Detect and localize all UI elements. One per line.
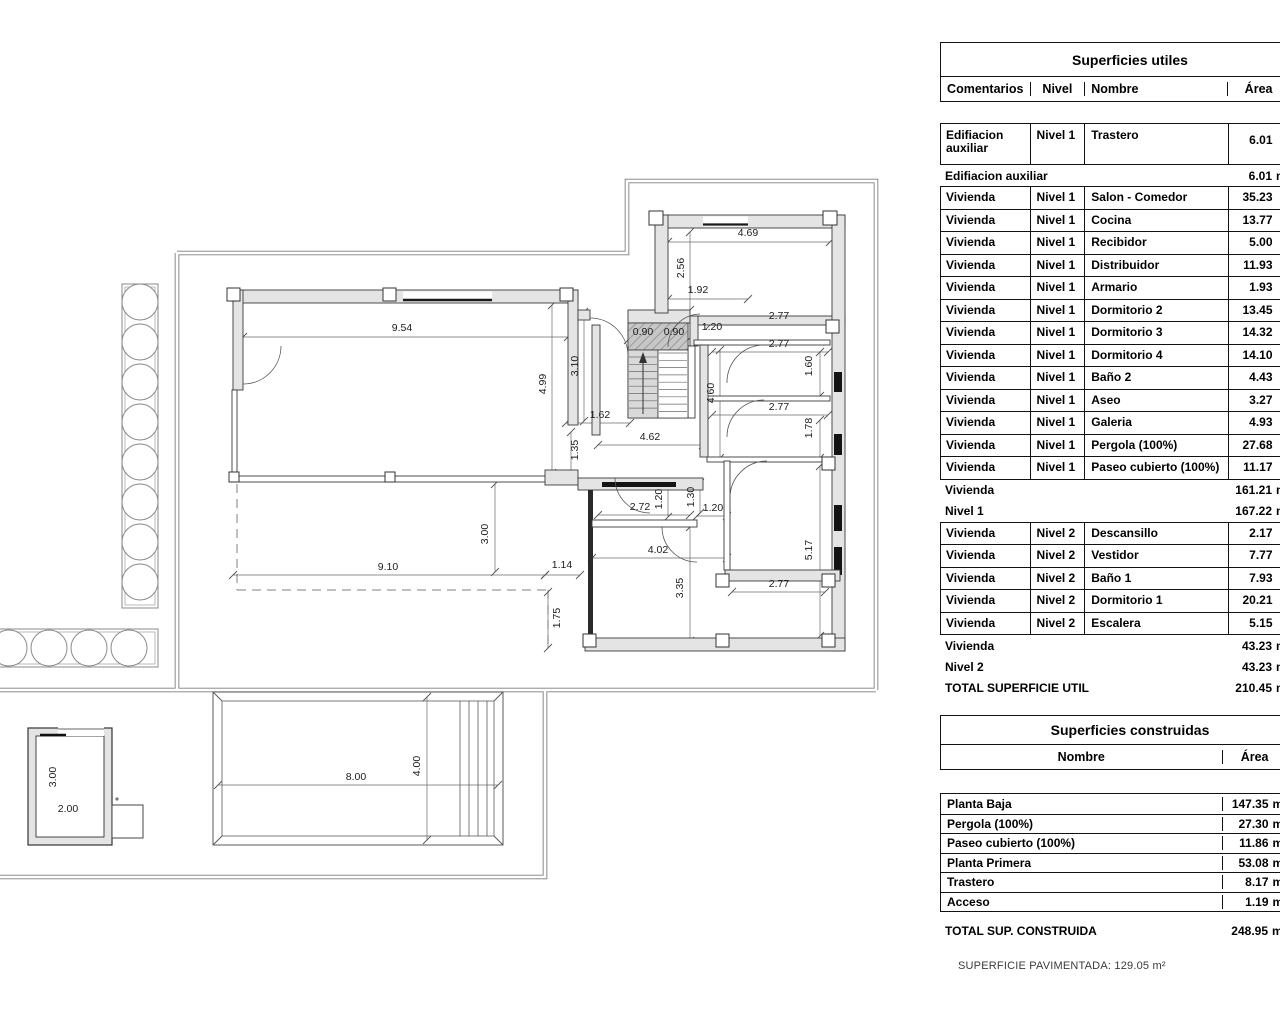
cell-nivel: Nivel 1 [1030, 124, 1085, 164]
cell-nombre: Planta Baja [941, 797, 1222, 811]
tree [0, 630, 27, 666]
cell-area: 13.45m² [1228, 300, 1280, 322]
dimension-label: 3.10 [569, 356, 581, 377]
tree [122, 524, 158, 560]
cell-nombre: Trastero [941, 875, 1222, 889]
cell-comentarios: Vivienda [941, 545, 1030, 567]
cell-area: 8.17m² [1222, 875, 1280, 889]
col-header-area: Área [1222, 750, 1280, 764]
door-arc [727, 345, 764, 383]
outbuilding-trastero [28, 727, 143, 845]
dimension-label: 1.35 [569, 440, 581, 461]
cell-nivel: Nivel 2 [1030, 613, 1085, 635]
cell-area: 6.01m² [1228, 169, 1280, 183]
dimension-label: 4.02 [648, 544, 669, 556]
cell-area: 43.23m² [1228, 660, 1280, 674]
pavement-area-note: SUPERFICIE PAVIMENTADA: 129.05 m² [958, 960, 1166, 972]
summary-row: Nivel 1167.22m² [940, 501, 1280, 522]
cell-area: 5.00m² [1228, 232, 1280, 254]
cell-area: 1.93m² [1228, 277, 1280, 299]
cell-area: 11.93m² [1228, 255, 1280, 277]
dimension-label: 1.20 [703, 502, 724, 514]
dimension-label: 1.78 [803, 418, 815, 439]
cell-nombre: Paseo cubierto (100%) [941, 836, 1222, 850]
dimension-label: 2.00 [58, 803, 79, 815]
table-body: Planta Baja147.35m²Pergola (100%)27.30m²… [940, 793, 1280, 912]
summary-row: Vivienda43.23m² [940, 635, 1280, 656]
table-row: ViviendaNivel 2Escalera5.15m² [941, 612, 1280, 635]
cell-area: 210.45m² [1228, 681, 1280, 695]
table-row: ViviendaNivel 1Dormitorio 213.45m² [941, 299, 1280, 322]
cell-nombre: Baño 1 [1084, 568, 1227, 590]
cell-nombre: Aseo [1084, 390, 1227, 412]
cell-area: 4.93m² [1228, 412, 1280, 434]
acceso-box [112, 805, 143, 838]
cell-comentarios: Vivienda [941, 613, 1030, 635]
table-row: Paseo cubierto (100%)11.86m² [941, 833, 1280, 853]
cell-nivel: Nivel 1 [1030, 412, 1085, 434]
cell-nombre: Dormitorio 4 [1084, 345, 1227, 367]
table-row: ViviendaNivel 1Dormitorio 414.10m² [941, 344, 1280, 367]
dimension-label: 2.77 [769, 310, 790, 322]
dimension-label: 3.00 [47, 767, 59, 788]
dimension-label: 1.92 [688, 284, 709, 296]
table-row: ViviendaNivel 1Baño 24.43m² [941, 366, 1280, 389]
cell-comentarios: Vivienda [941, 300, 1030, 322]
cell-nivel: Nivel 1 [1030, 277, 1085, 299]
dimension-label: 1.75 [551, 608, 563, 629]
cell-nivel: Nivel 1 [1030, 390, 1085, 412]
cell-area: 11.86m² [1222, 836, 1280, 850]
cell-nivel: Nivel 1 [1030, 210, 1085, 232]
cell-nivel: Nivel 2 [1030, 590, 1085, 612]
cell-nombre: Salon - Comedor [1084, 187, 1227, 209]
cell-nombre: Escalera [1084, 613, 1227, 635]
cell-area: 2.17m² [1228, 523, 1280, 545]
cell-comentarios: Vivienda [941, 255, 1030, 277]
dimension-label: 2.77 [769, 578, 790, 590]
cell-nivel: Nivel 1 [1030, 457, 1085, 479]
dimension-label: 4.00 [411, 756, 423, 777]
cell-area: 35.23m² [1228, 187, 1280, 209]
cell-nivel: Nivel 1 [1030, 322, 1085, 344]
cell-comentarios: Edifiacion auxiliar [941, 124, 1030, 164]
cell-comentarios: Vivienda [941, 277, 1030, 299]
cell-nombre: Armario [1084, 277, 1227, 299]
total-row: TOTAL SUP. CONSTRUIDA 248.95m² [940, 920, 1280, 942]
cell-nivel: Nivel 1 [1030, 300, 1085, 322]
dimension-label: 2.77 [769, 338, 790, 350]
table-block: ViviendaNivel 1Salon - Comedor35.23m²Viv… [940, 186, 1280, 480]
superficies-construidas-table: Superficies construidas Nombre Área Plan… [940, 715, 1280, 942]
cell-nombre: Cocina [1084, 210, 1227, 232]
cell-nivel: Nivel 1 [1030, 345, 1085, 367]
table-row: Trastero8.17m² [941, 872, 1280, 892]
dimension-label: 1.20 [702, 321, 723, 333]
cell-area: 4.43m² [1228, 367, 1280, 389]
total-value: 248.95m² [1222, 924, 1280, 938]
tree [111, 630, 147, 666]
door-arc [730, 461, 767, 498]
table-row: ViviendaNivel 1Galeria4.93m² [941, 411, 1280, 434]
cell-nombre: Distribuidor [1084, 255, 1227, 277]
dimension-label: 2.72 [630, 501, 651, 513]
door-arc [727, 400, 764, 437]
cell-area: 147.35m² [1222, 797, 1280, 811]
cell-area: 13.77m² [1228, 210, 1280, 232]
cell-area: 20.21m² [1228, 590, 1280, 612]
cell-comentarios: Vivienda [941, 523, 1030, 545]
table-row: Planta Primera53.08m² [941, 853, 1280, 873]
table-title: Superficies utiles [940, 42, 1280, 77]
trees [0, 284, 158, 666]
cell-nombre: Pergola (100%) [941, 817, 1222, 831]
cell-comentarios: Vivienda [941, 568, 1030, 590]
table-header-row: Comentarios Nivel Nombre Área [940, 77, 1280, 102]
cell-comentarios: Vivienda [941, 210, 1030, 232]
dimension-label: 9.10 [378, 561, 399, 573]
table-row: Planta Baja147.35m² [941, 794, 1280, 814]
table-header-row: Nombre Área [940, 745, 1280, 770]
summary-label: Vivienda [940, 483, 1228, 497]
floor-plan: 9.544.993.100.900.901.201.922.564.692.77… [0, 0, 950, 1024]
cell-area: 43.23m² [1228, 639, 1280, 653]
cell-comentarios: Vivienda [941, 412, 1030, 434]
tree [71, 630, 107, 666]
tree [122, 444, 158, 480]
cell-comentarios: Vivienda [941, 367, 1030, 389]
dimension-labels: 9.544.993.100.900.901.201.922.564.692.77… [47, 227, 815, 815]
cell-area: 7.77m² [1228, 545, 1280, 567]
table-title: Superficies construidas [940, 715, 1280, 745]
tree [122, 484, 158, 520]
cell-area: 167.22m² [1228, 504, 1280, 518]
cell-nombre: Paseo cubierto (100%) [1084, 457, 1227, 479]
columns [227, 211, 839, 647]
total-label: TOTAL SUP. CONSTRUIDA [940, 924, 1222, 938]
table-row: ViviendaNivel 1Paseo cubierto (100%)11.1… [941, 456, 1280, 479]
cell-area: 6.01m² [1228, 124, 1280, 164]
cell-comentarios: Vivienda [941, 232, 1030, 254]
cell-nombre: Dormitorio 1 [1084, 590, 1227, 612]
summary-row: Nivel 243.23m² [940, 656, 1280, 677]
cell-nivel: Nivel 1 [1030, 255, 1085, 277]
dimension-label: 1.62 [590, 409, 611, 421]
table-row: ViviendaNivel 1Armario1.93m² [941, 276, 1280, 299]
table-row: Edifiacion auxiliarNivel 1Trastero6.01m² [941, 124, 1280, 164]
table-row: ViviendaNivel 1Recibidor5.00m² [941, 231, 1280, 254]
tree [122, 404, 158, 440]
pool-steps [460, 701, 487, 836]
swimming-pool [213, 692, 503, 845]
cell-nombre: Recibidor [1084, 232, 1227, 254]
dimension-label: 1.20 [653, 489, 665, 510]
cell-nombre: Descansillo [1084, 523, 1227, 545]
col-header-area: Área [1227, 82, 1280, 96]
dimension-label: 9.54 [392, 322, 413, 334]
dimension-label: 1.30 [685, 487, 697, 508]
table-row: Acceso1.19m² [941, 892, 1280, 912]
col-header-comentarios: Comentarios [941, 82, 1030, 96]
cell-nombre: Dormitorio 2 [1084, 300, 1227, 322]
cell-nombre: Trastero [1084, 124, 1227, 164]
cell-area: 5.15m² [1228, 613, 1280, 635]
col-header-nombre: Nombre [941, 750, 1222, 764]
cell-comentarios: Vivienda [941, 457, 1030, 479]
dimension-label: 8.00 [346, 771, 367, 783]
house-walls [232, 215, 845, 651]
dimension-label: 3.00 [479, 524, 491, 545]
dimension-label: 1.14 [552, 559, 573, 571]
cell-nivel: Nivel 1 [1030, 187, 1085, 209]
summary-label: Edifiacion auxiliar [940, 169, 1228, 183]
summary-label: Vivienda [940, 639, 1228, 653]
dimension-label: 4.69 [738, 227, 759, 239]
cell-area: 14.10m² [1228, 345, 1280, 367]
dimension-label: 0.90 [664, 326, 685, 338]
cell-area: 7.93m² [1228, 568, 1280, 590]
table-row: ViviendaNivel 2Baño 17.93m² [941, 567, 1280, 590]
tree [122, 564, 158, 600]
table-block: ViviendaNivel 2Descansillo2.17m²Vivienda… [940, 522, 1280, 636]
summary-label: Nivel 1 [940, 504, 1228, 518]
cell-nombre: Planta Primera [941, 856, 1222, 870]
cell-nivel: Nivel 2 [1030, 523, 1085, 545]
table-row: ViviendaNivel 1Cocina13.77m² [941, 209, 1280, 232]
summary-row: Edifiacion auxiliar6.01m² [940, 165, 1280, 186]
cell-nivel: Nivel 2 [1030, 545, 1085, 567]
dimension-label: 3.35 [674, 578, 686, 599]
cell-nombre: Acceso [941, 895, 1222, 909]
cell-area: 53.08m² [1222, 856, 1280, 870]
table-row: ViviendaNivel 1Salon - Comedor35.23m² [941, 187, 1280, 209]
cell-nivel: Nivel 2 [1030, 568, 1085, 590]
tree [122, 284, 158, 320]
tree [122, 364, 158, 400]
summary-row: Vivienda161.21m² [940, 480, 1280, 501]
cell-nivel: Nivel 1 [1030, 232, 1085, 254]
cell-nombre: Baño 2 [1084, 367, 1227, 389]
cell-nombre: Pergola (100%) [1084, 435, 1227, 457]
dimension-label: 0.90 [633, 326, 654, 338]
cell-area: 1.19m² [1222, 895, 1280, 909]
dimension-label: 4.62 [640, 431, 661, 443]
dimension-label: 1.60 [803, 356, 815, 377]
cell-comentarios: Vivienda [941, 322, 1030, 344]
cell-area: 3.27m² [1228, 390, 1280, 412]
cell-comentarios: Vivienda [941, 390, 1030, 412]
summary-label: Nivel 2 [940, 660, 1228, 674]
table-row: ViviendaNivel 1Distribuidor11.93m² [941, 254, 1280, 277]
col-header-nombre: Nombre [1084, 82, 1227, 96]
dimension-label: 4.60 [705, 383, 717, 404]
table-block: Edifiacion auxiliarNivel 1Trastero6.01m² [940, 123, 1280, 165]
cell-comentarios: Vivienda [941, 187, 1030, 209]
superficies-utiles-table: Superficies utiles Comentarios Nivel Nom… [940, 42, 1280, 699]
dimension-label: 4.99 [537, 374, 549, 395]
cell-comentarios: Vivienda [941, 435, 1030, 457]
page: 9.544.993.100.900.901.201.922.564.692.77… [0, 0, 1280, 1024]
table-row: ViviendaNivel 1Pergola (100%)27.68m² [941, 434, 1280, 457]
dimension-label: 2.77 [769, 401, 790, 413]
cell-nivel: Nivel 1 [1030, 435, 1085, 457]
cell-area: 161.21m² [1228, 483, 1280, 497]
table-row: Pergola (100%)27.30m² [941, 814, 1280, 834]
table-body: Edifiacion auxiliarNivel 1Trastero6.01m²… [940, 123, 1280, 699]
table-spacer [940, 102, 1280, 123]
table-row: ViviendaNivel 2Vestidor7.77m² [941, 544, 1280, 567]
cell-area: 27.68m² [1228, 435, 1280, 457]
table-row: ViviendaNivel 1Aseo3.27m² [941, 389, 1280, 412]
table-spacer [940, 770, 1280, 793]
marker-dot [115, 797, 118, 800]
col-header-nivel: Nivel [1030, 82, 1085, 96]
cell-nombre: Galeria [1084, 412, 1227, 434]
cell-area: 27.30m² [1222, 817, 1280, 831]
cell-area: 11.17m² [1228, 457, 1280, 479]
cell-nombre: Dormitorio 3 [1084, 322, 1227, 344]
cell-nombre: Vestidor [1084, 545, 1227, 567]
cell-comentarios: Vivienda [941, 590, 1030, 612]
cell-area: 14.32m² [1228, 322, 1280, 344]
dimension-label: 2.56 [675, 258, 687, 279]
table-row: ViviendaNivel 1Dormitorio 314.32m² [941, 321, 1280, 344]
dimension-label: 5.17 [803, 540, 815, 561]
door-arc [243, 346, 281, 384]
tree [122, 324, 158, 360]
cell-nivel: Nivel 1 [1030, 367, 1085, 389]
summary-label: TOTAL SUPERFICIE UTIL [940, 681, 1228, 695]
table-row: ViviendaNivel 2Descansillo2.17m² [941, 523, 1280, 545]
total-row: TOTAL SUPERFICIE UTIL210.45m² [940, 677, 1280, 699]
table-row: ViviendaNivel 2Dormitorio 120.21m² [941, 589, 1280, 612]
cell-comentarios: Vivienda [941, 345, 1030, 367]
tree [31, 630, 67, 666]
